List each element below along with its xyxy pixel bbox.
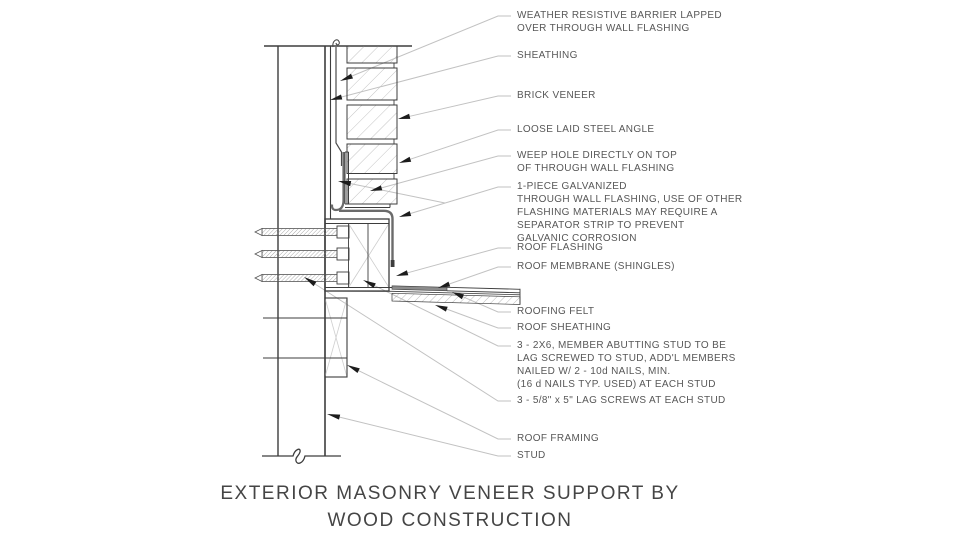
roof-sheathing-band [392, 293, 520, 304]
label-roofing-felt: ROOFING FELT [517, 305, 594, 318]
label-roof-flashing: ROOF FLASHING [517, 241, 603, 254]
flashing-hem [391, 260, 395, 267]
brick-veneer-section [347, 46, 397, 204]
label-roof-sheathing: ROOF SHEATHING [517, 321, 611, 334]
label-through-wall-flashing: 1-PIECE GALVANIZED THROUGH WALL FLASHING… [517, 180, 742, 245]
label-roof-membrane: ROOF MEMBRANE (SHINGLES) [517, 260, 675, 273]
detail-drawing [0, 0, 960, 540]
label-weep-hole: WEEP HOLE DIRECTLY ON TOP OF THROUGH WAL… [517, 149, 677, 175]
label-sheathing: SHEATHING [517, 49, 578, 62]
weather-barrier-line [333, 40, 342, 166]
label-brick-veneer: BRICK VENEER [517, 89, 596, 102]
architectural-detail-page: WEATHER RESISTIVE BARRIER LAPPED OVER TH… [0, 0, 960, 540]
break-line [262, 449, 341, 463]
label-2x6-members: 3 - 2X6, MEMBER ABUTTING STUD TO BE LAG … [517, 339, 736, 391]
label-roof-framing: ROOF FRAMING [517, 432, 599, 445]
roof-assembly [325, 286, 520, 305]
leader-lines [315, 16, 511, 456]
roof-framing-section [263, 298, 347, 377]
label-loose-laid-steel-angle: LOOSE LAID STEEL ANGLE [517, 123, 654, 136]
label-weather-resistive-barrier: WEATHER RESISTIVE BARRIER LAPPED OVER TH… [517, 9, 722, 35]
label-lag-screws: 3 - 5/8" x 5" LAG SCREWS AT EACH STUD [517, 394, 726, 407]
drawing-title: EXTERIOR MASONRY VENEER SUPPORT BY WOOD … [190, 480, 710, 534]
label-stud: STUD [517, 449, 546, 462]
roof-membrane-band [392, 286, 447, 291]
